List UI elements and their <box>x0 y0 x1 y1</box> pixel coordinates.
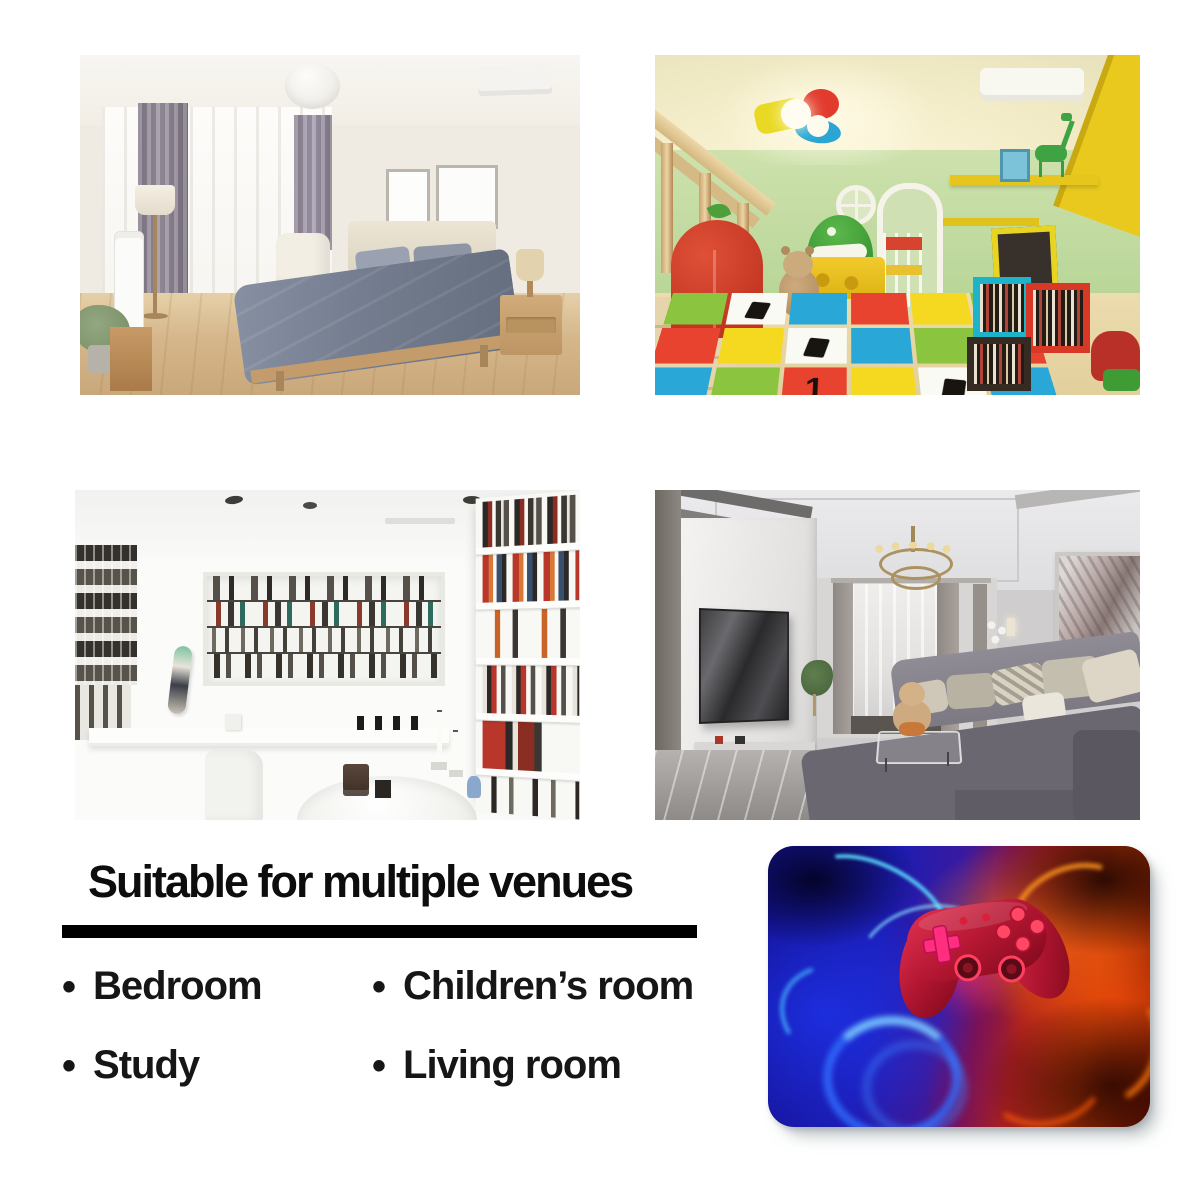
play-mat-tile <box>851 293 910 325</box>
play-mat-tile <box>910 293 972 325</box>
bedroom-floor-lamp-base <box>142 313 168 319</box>
play-mat-tile <box>851 328 913 364</box>
white-desk-counter <box>89 728 449 746</box>
giraffe-toy-head <box>1061 113 1072 121</box>
glass-coffee-table <box>876 731 963 764</box>
ceiling-lamp-center-small <box>807 115 829 137</box>
candle <box>437 710 442 766</box>
ceiling-spotlight <box>303 502 317 509</box>
play-mat-tile <box>851 367 918 395</box>
skateboard-decor <box>167 645 193 715</box>
bedroom-table-lamp-shade <box>516 249 544 281</box>
book-row <box>483 550 580 602</box>
bedroom-photo <box>80 55 580 395</box>
table-ornament <box>375 780 391 798</box>
play-mat-tile <box>788 293 846 325</box>
divider-rule <box>62 925 697 938</box>
book-row <box>483 494 580 547</box>
childrens-room-air-conditioner <box>980 68 1084 101</box>
sofa-armrest <box>1073 730 1140 820</box>
book-row <box>483 665 580 715</box>
staircase-baluster <box>661 143 673 273</box>
bullet-icon: • <box>372 1046 385 1086</box>
wall-mounted-tv <box>699 608 789 724</box>
venue-item-bedroom: •Bedroom <box>62 964 372 1009</box>
bunk-bed-red-rail <box>886 237 922 250</box>
plant-stand <box>813 694 816 716</box>
bunk-bed-yellow-mattress <box>886 265 922 275</box>
drape-left <box>833 582 853 734</box>
book-row <box>483 608 580 658</box>
niche-collection-row <box>207 576 441 602</box>
bedroom-pendant-lamp <box>285 63 340 109</box>
bedroom-side-table <box>110 327 152 391</box>
console-ornament <box>715 736 723 744</box>
blue-flame-ring <box>863 1041 967 1127</box>
play-mat-number: 1 <box>780 367 847 395</box>
play-mat-tile <box>726 293 788 325</box>
books <box>974 344 1024 384</box>
table-lantern <box>343 764 369 796</box>
play-mat-tile <box>718 328 784 364</box>
product-infographic-canvas: 1 <box>0 0 1200 1200</box>
sofa-pillow <box>946 672 996 709</box>
bedroom-nightstand-drawer <box>506 317 556 333</box>
headboard-eye-dot <box>827 227 836 236</box>
bedroom-table-lamp-base <box>527 281 533 297</box>
yellow-wall-shelf-lower <box>943 218 1039 226</box>
venue-label: Bedroom <box>93 964 262 1009</box>
teddy-bear-scarf <box>899 722 925 736</box>
venue-label: Children’s room <box>403 964 693 1009</box>
ceiling-vent <box>385 518 455 524</box>
bedroom-floor-lamp-shade <box>135 185 175 215</box>
dark-cube-shelf <box>967 337 1031 391</box>
candle <box>453 730 458 774</box>
childrens-room-photo: 1 <box>655 55 1140 395</box>
books <box>980 284 1024 332</box>
bullet-icon: • <box>372 967 385 1007</box>
blue-glass-vase <box>467 776 481 798</box>
venue-label: Study <box>93 1043 199 1088</box>
wall-display-niche <box>203 572 445 686</box>
venue-item-childrens-room: •Children’s room <box>372 964 707 1009</box>
teddy-bear-head <box>783 251 813 278</box>
desk-ornament <box>225 714 241 730</box>
caption-block: Suitable for multiple venues •Bedroom •C… <box>62 854 707 1088</box>
teddy-bear-ear <box>805 246 814 255</box>
teddy-bear-ear <box>781 246 790 255</box>
venue-list: •Bedroom •Children’s room •Study •Living… <box>62 964 707 1088</box>
bullet-icon: • <box>62 1046 75 1086</box>
chandelier-tier <box>891 566 941 590</box>
bedroom-floor-lamp-pole <box>153 215 157 317</box>
giraffe-toy-leg <box>1039 161 1042 177</box>
venue-item-living-room: •Living room <box>372 1043 707 1088</box>
white-bookshelf <box>476 490 580 820</box>
teddy-bear-head <box>899 682 925 706</box>
shelf-board <box>476 658 580 665</box>
bedroom-bed-leg <box>480 345 488 367</box>
console-ornament <box>735 736 745 744</box>
shelf-photo-frame <box>1000 149 1030 182</box>
play-mat-tile <box>785 328 847 364</box>
red-cube-shelf <box>1026 283 1090 353</box>
candle-holder <box>431 762 447 770</box>
table-leg <box>885 758 887 772</box>
mouse-pad-product-image <box>768 846 1150 1127</box>
venue-item-study: •Study <box>62 1043 372 1088</box>
niche-collection-row <box>207 654 441 678</box>
play-mat-tile <box>655 328 721 364</box>
bedroom-bed-leg <box>276 371 284 391</box>
bedroom-curtain-right <box>294 115 332 250</box>
chandelier-lights <box>873 542 953 556</box>
table-leg <box>947 752 949 766</box>
candle-holder <box>449 770 463 777</box>
blue-cube-shelf <box>973 277 1031 339</box>
left-wall-display-shelves <box>75 545 137 685</box>
book-row <box>483 776 580 820</box>
section-title: Suitable for multiple venues <box>88 854 707 910</box>
desk-bottles <box>357 716 427 730</box>
book-row <box>483 721 580 774</box>
bedroom-wall-art-small <box>386 169 430 229</box>
play-mat-tile <box>655 367 713 395</box>
bedroom-air-conditioner <box>477 64 552 97</box>
white-chair <box>205 750 263 820</box>
play-mat-tile <box>663 293 728 325</box>
niche-collection-row <box>207 602 441 628</box>
bedroom-wall-art-large <box>436 165 498 229</box>
books <box>1033 290 1083 346</box>
niche-collection-row <box>207 628 441 654</box>
play-mat-tile <box>708 367 780 395</box>
study-photo <box>75 490 580 820</box>
bullet-icon: • <box>62 967 75 1007</box>
living-room-photo <box>655 490 1140 820</box>
green-toy <box>1103 369 1140 391</box>
venue-label: Living room <box>403 1043 621 1088</box>
chandelier <box>873 526 953 596</box>
giraffe-toy-leg <box>1061 161 1064 177</box>
play-mat-tile: 1 <box>780 367 847 395</box>
